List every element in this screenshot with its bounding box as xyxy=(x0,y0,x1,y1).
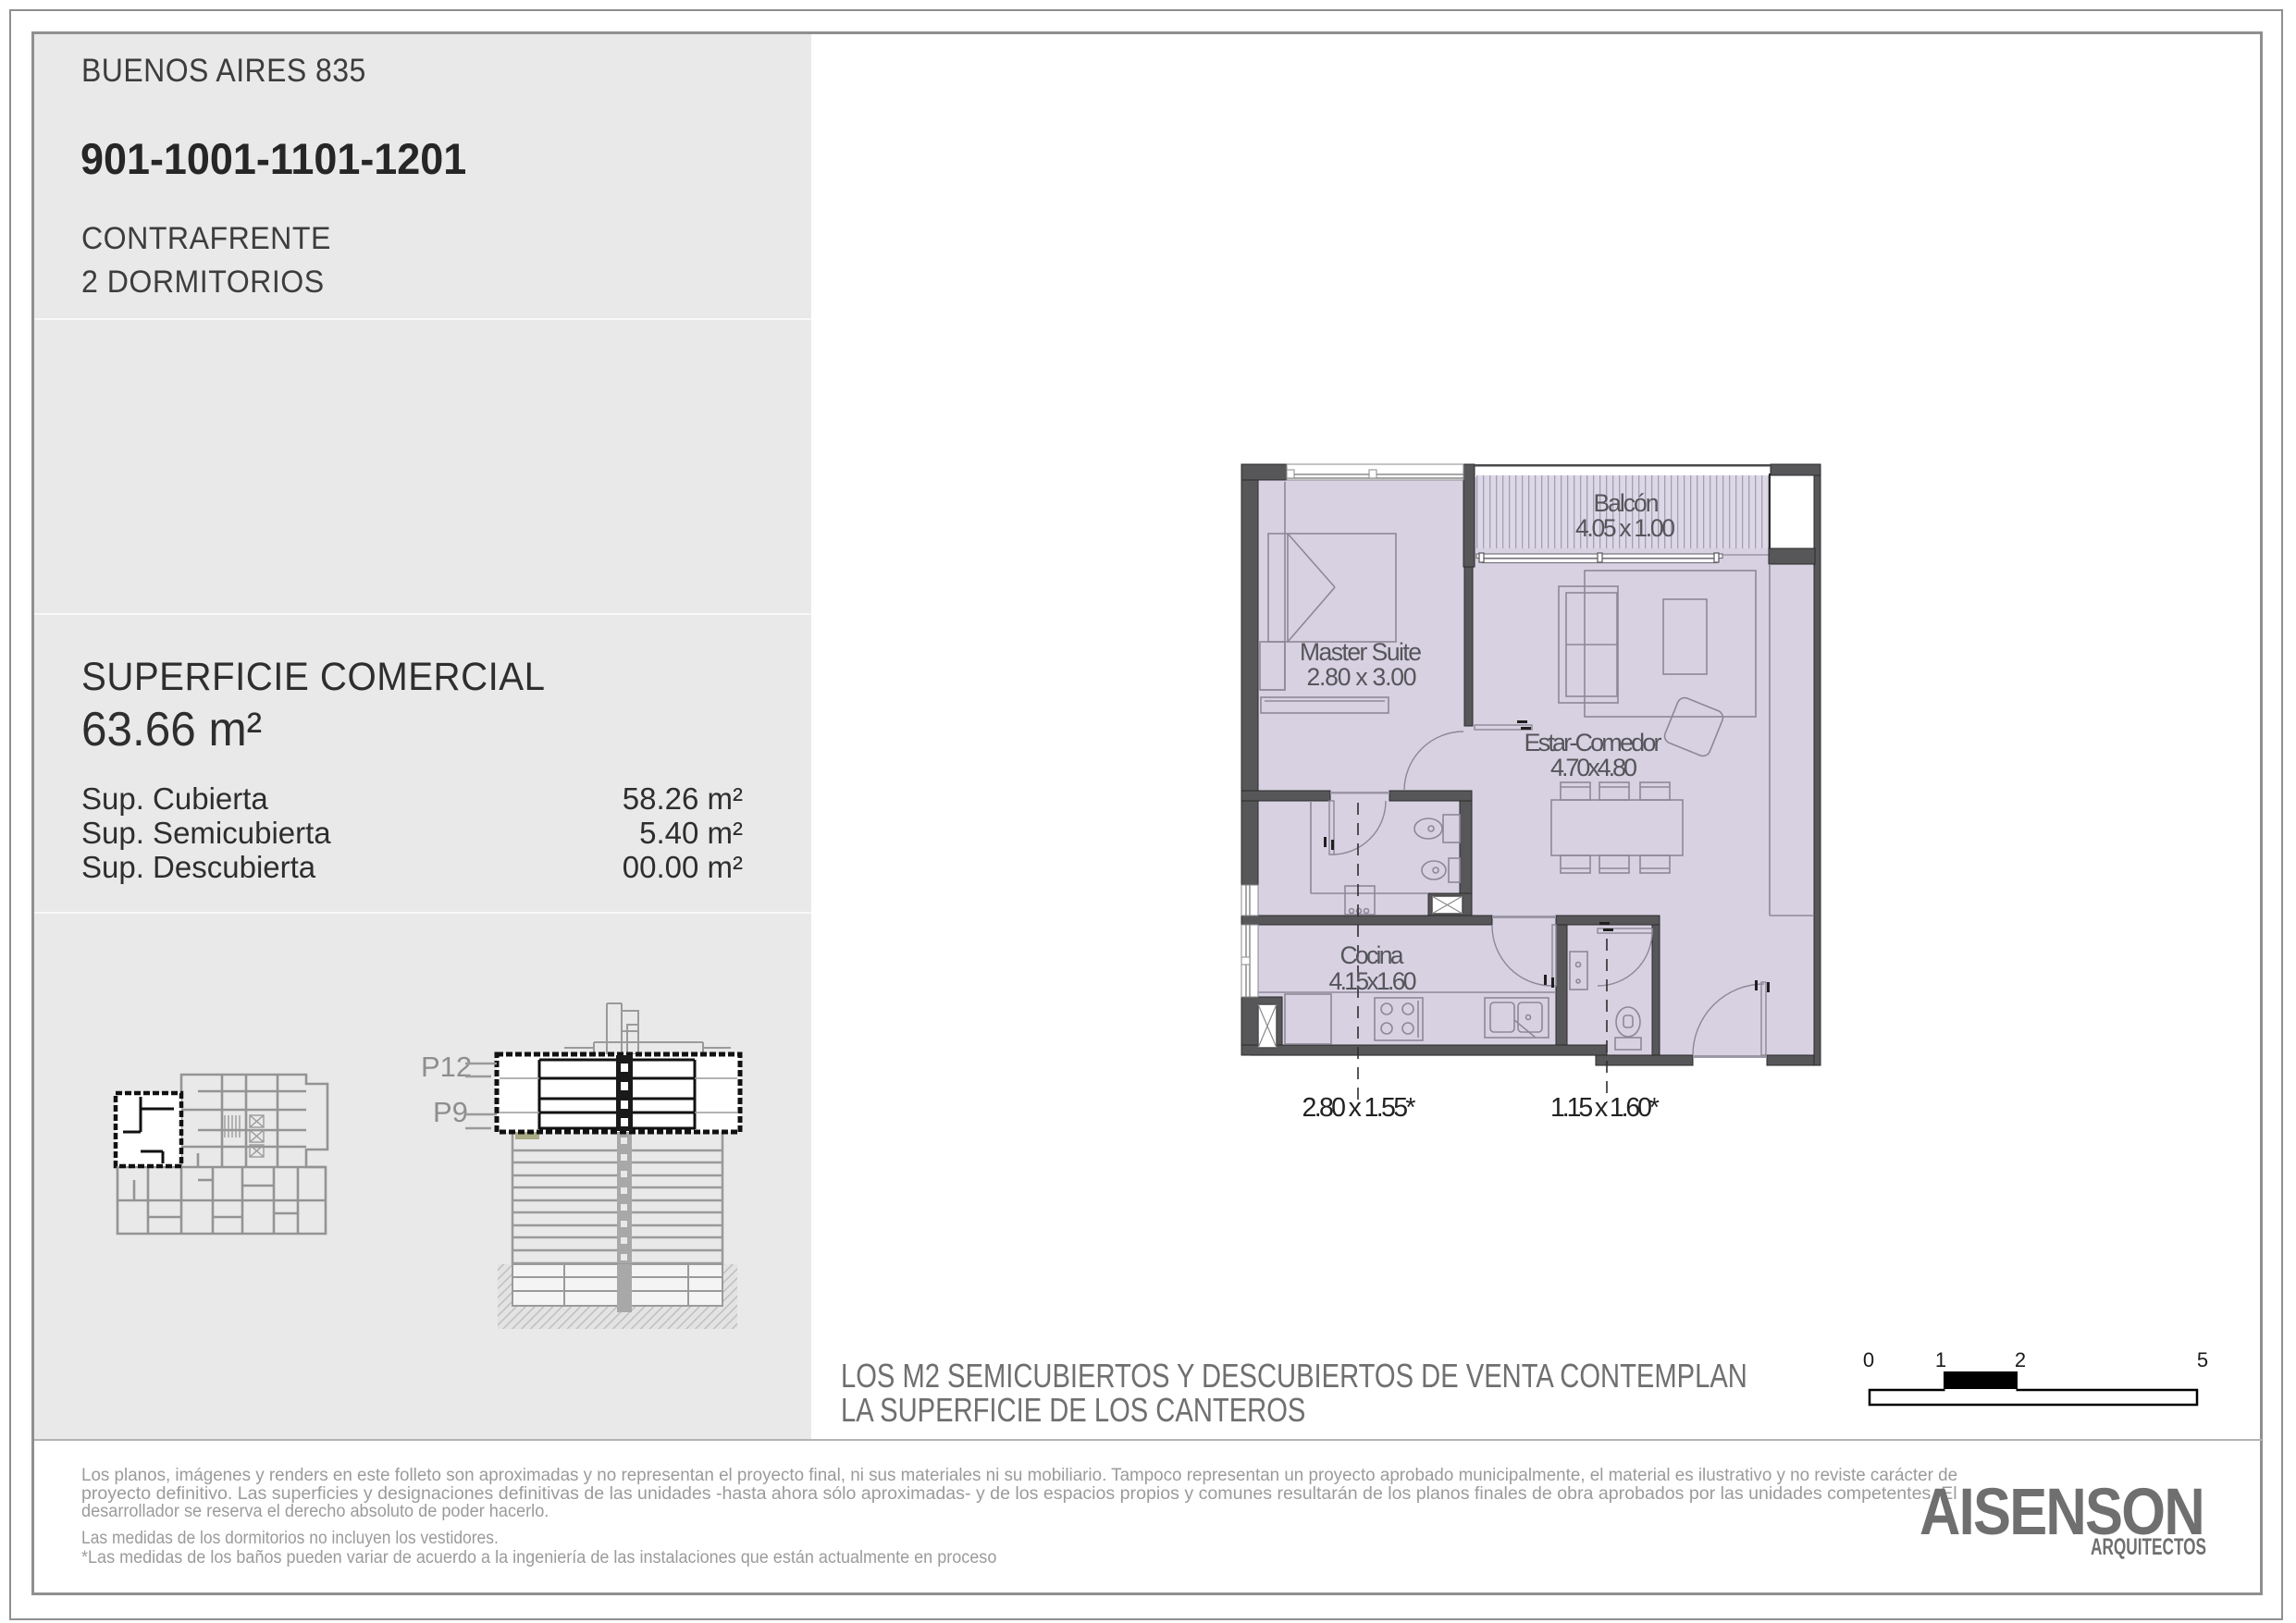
svg-text:4.15x1.60: 4.15x1.60 xyxy=(1329,967,1417,995)
svg-text:P12: P12 xyxy=(421,1051,472,1083)
svg-text:Estar-Comedor: Estar-Comedor xyxy=(1524,729,1662,756)
svg-text:5: 5 xyxy=(2197,1348,2208,1371)
svg-text:Master Suite: Master Suite xyxy=(1300,638,1422,666)
svg-text:1.15 x 1.60*: 1.15 x 1.60* xyxy=(1550,1093,1660,1123)
svg-text:0: 0 xyxy=(1863,1348,1874,1371)
svg-text:4.05 x 1.00: 4.05 x 1.00 xyxy=(1575,514,1675,542)
svg-text:Cocina: Cocina xyxy=(1340,941,1404,969)
svg-text:4.70x4.80: 4.70x4.80 xyxy=(1550,754,1637,781)
svg-text:Balcón: Balcón xyxy=(1594,489,1660,517)
svg-text:1: 1 xyxy=(1935,1348,1946,1371)
svg-text:2.80 x 1.55*: 2.80 x 1.55* xyxy=(1302,1093,1416,1123)
svg-text:2.80 x 3.00: 2.80 x 3.00 xyxy=(1307,663,1417,691)
svg-text:P9: P9 xyxy=(433,1096,468,1128)
svg-text:2: 2 xyxy=(2015,1348,2026,1371)
